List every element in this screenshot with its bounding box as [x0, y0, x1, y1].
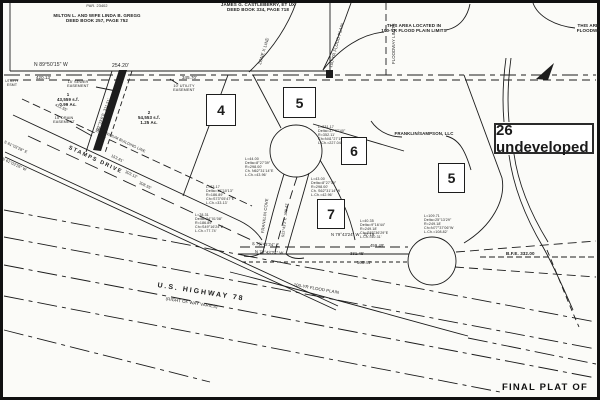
north-arrow-icon: [536, 63, 554, 80]
label-curve-a: L=44.00 Delta=8°27'39" R=298.00' Ch. N62…: [245, 157, 273, 177]
parcel-box-4: 4: [206, 94, 236, 126]
parcel-box-5-right: 5: [438, 163, 465, 193]
label-dist-568: 568.41': [357, 261, 371, 266]
label-dist-459: 459.49': [370, 244, 384, 249]
label-bearing-n7943-37: N 79°43'24" W 37.19': [331, 233, 375, 238]
label-bearing-n895015: N 89°50'15" W: [34, 63, 68, 69]
plat-map-scan: PAR. 23402MILTON L. AND WIFE LINDA B. GR…: [0, 0, 600, 400]
parcel-box-5-top: 5: [283, 87, 316, 118]
label-owner-gregg: MILTON L. AND WIFE LINDA B. GREGG DEED B…: [53, 13, 140, 23]
label-bfe: B.F.E. 332.00: [506, 251, 535, 256]
label-floodway-limits: FLOODWAY LIMITS: [392, 23, 397, 64]
label-curve-e: L=43.00 Delta=8°27'39" R=298.00' Ch. S62…: [311, 177, 340, 197]
parcel-box-7: 7: [317, 199, 345, 229]
parcel-box-6: 6: [341, 137, 367, 165]
label-curve-h: L=78.31 Delta=24°01'08" R=186.89' Ch=S49…: [195, 213, 223, 233]
label-dist-345: 345.70': [182, 76, 197, 81]
label-floodway-note: THIS AREA FLOODWAY: [577, 23, 600, 33]
plat-linework: [0, 0, 600, 400]
label-sewer-easement: 15' SEWER EASEMENT: [67, 80, 89, 89]
label-owner-castleberry: JAMES G. CASTLEBERRY, ET UX DEED BOOK 33…: [221, 2, 295, 12]
label-drain-easement: 15' DRAIN EASEMENT: [53, 116, 75, 125]
label-dist-254: 254.20': [112, 64, 129, 70]
label-parcel-number: PAR. 23402: [86, 4, 107, 8]
label-lot-2-area: 2 54,553 s.f. 1.25 Ac.: [138, 111, 160, 126]
final-plat-title: FINAL PLAT OF: [502, 382, 588, 393]
label-dist-331: 331.45': [350, 252, 364, 257]
label-utility-easement: 10' UTILITY EASEMENT: [173, 84, 195, 93]
label-curve-c: L=33.17 Delta=10°10'13" R=186.89' Ch=S73…: [206, 185, 234, 205]
label-curve-f: L=109.71 Delta=25°13'29" R=249.18' Ch=N7…: [424, 214, 453, 234]
boundary-monument: [326, 70, 333, 78]
label-dist-420: 420.13': [36, 76, 51, 81]
label-utility-left: UTILITY ESMT: [5, 80, 19, 88]
annotation-26-undeveloped: 26 undeveloped: [494, 123, 594, 154]
label-franklin-sampson: FRANKLIN/SAMPSON, LLC: [395, 132, 454, 137]
scan-border: [2, 2, 599, 399]
